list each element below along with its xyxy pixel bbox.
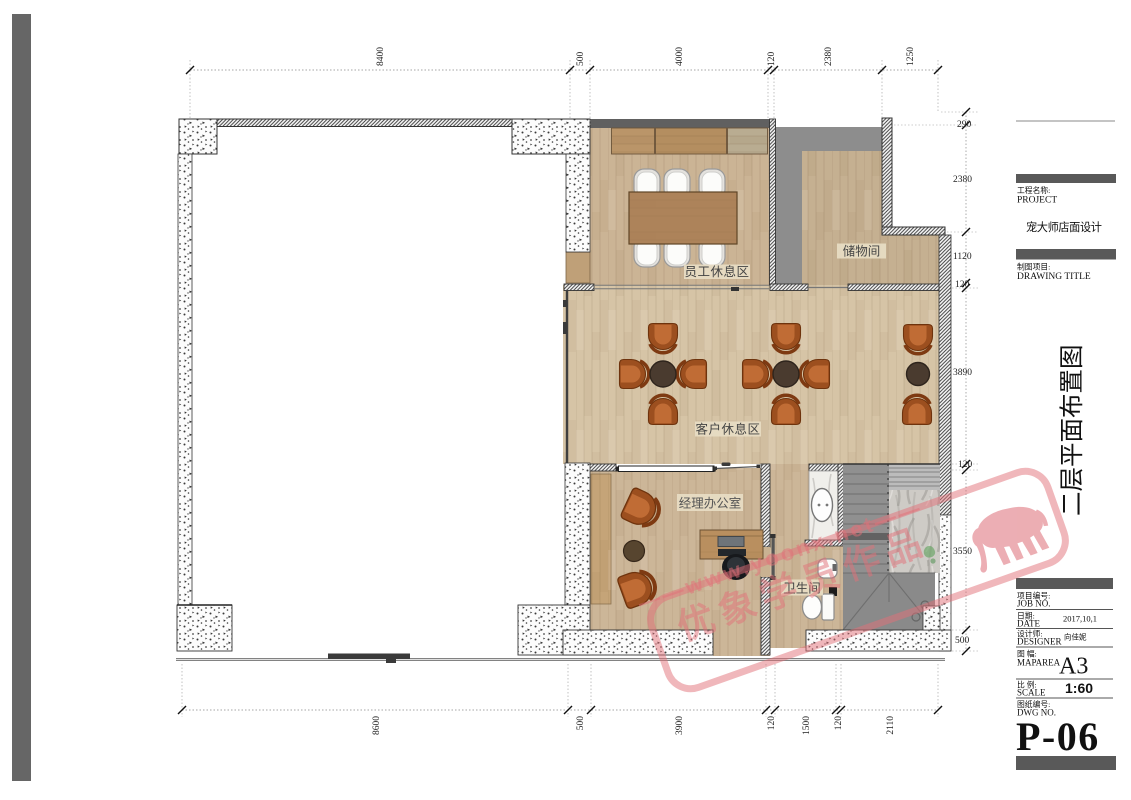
svg-text:向佳妮: 向佳妮 bbox=[1064, 632, 1087, 642]
svg-text:2380: 2380 bbox=[953, 175, 972, 185]
svg-text:3900: 3900 bbox=[675, 716, 685, 735]
svg-text:PROJECT: PROJECT bbox=[1017, 196, 1057, 206]
svg-text:120: 120 bbox=[767, 52, 777, 67]
svg-text:290: 290 bbox=[957, 120, 972, 130]
svg-text:宠大师店面设计: 宠大师店面设计 bbox=[1026, 220, 1102, 234]
svg-text:1120: 1120 bbox=[953, 252, 972, 262]
svg-text:2017,10,1: 2017,10,1 bbox=[1063, 614, 1097, 624]
svg-text:1250: 1250 bbox=[906, 47, 916, 66]
svg-text:经理办公室: 经理办公室 bbox=[679, 496, 742, 511]
svg-text:制图项目:: 制图项目: bbox=[1017, 262, 1050, 272]
svg-text:4000: 4000 bbox=[675, 47, 685, 66]
svg-text:3550: 3550 bbox=[953, 547, 972, 557]
svg-text:员工休息区: 员工休息区 bbox=[684, 264, 749, 279]
svg-text:MAPAREA: MAPAREA bbox=[1017, 658, 1061, 668]
svg-text:SCALE: SCALE bbox=[1017, 688, 1046, 698]
svg-text:A3: A3 bbox=[1059, 654, 1088, 680]
svg-text:8400: 8400 bbox=[376, 47, 386, 66]
svg-text:500: 500 bbox=[576, 52, 586, 67]
svg-text:120: 120 bbox=[955, 280, 970, 290]
svg-text:1500: 1500 bbox=[802, 716, 812, 735]
svg-text:500: 500 bbox=[955, 636, 970, 646]
svg-text:客户休息区: 客户休息区 bbox=[695, 422, 760, 437]
svg-text:2110: 2110 bbox=[886, 716, 896, 735]
svg-text:120: 120 bbox=[834, 716, 844, 731]
svg-text:储物间: 储物间 bbox=[843, 244, 881, 259]
svg-text:DESIGNER: DESIGNER bbox=[1017, 637, 1062, 647]
svg-text:3890: 3890 bbox=[953, 368, 972, 378]
svg-text:JOB NO.: JOB NO. bbox=[1017, 599, 1051, 609]
svg-text:工程名称:: 工程名称: bbox=[1017, 185, 1050, 195]
svg-text:500: 500 bbox=[576, 716, 586, 731]
svg-text:DRAWING TITLE: DRAWING TITLE bbox=[1017, 272, 1091, 282]
svg-text:120: 120 bbox=[958, 460, 973, 470]
svg-text:DATE: DATE bbox=[1017, 619, 1040, 629]
svg-text:2380: 2380 bbox=[824, 47, 834, 66]
svg-text:二层平面布置图: 二层平面布置图 bbox=[1058, 345, 1086, 517]
svg-text:P-06: P-06 bbox=[1016, 714, 1100, 759]
svg-text:120: 120 bbox=[767, 716, 777, 731]
svg-text:1:60: 1:60 bbox=[1065, 680, 1093, 696]
svg-text:8600: 8600 bbox=[372, 716, 382, 735]
